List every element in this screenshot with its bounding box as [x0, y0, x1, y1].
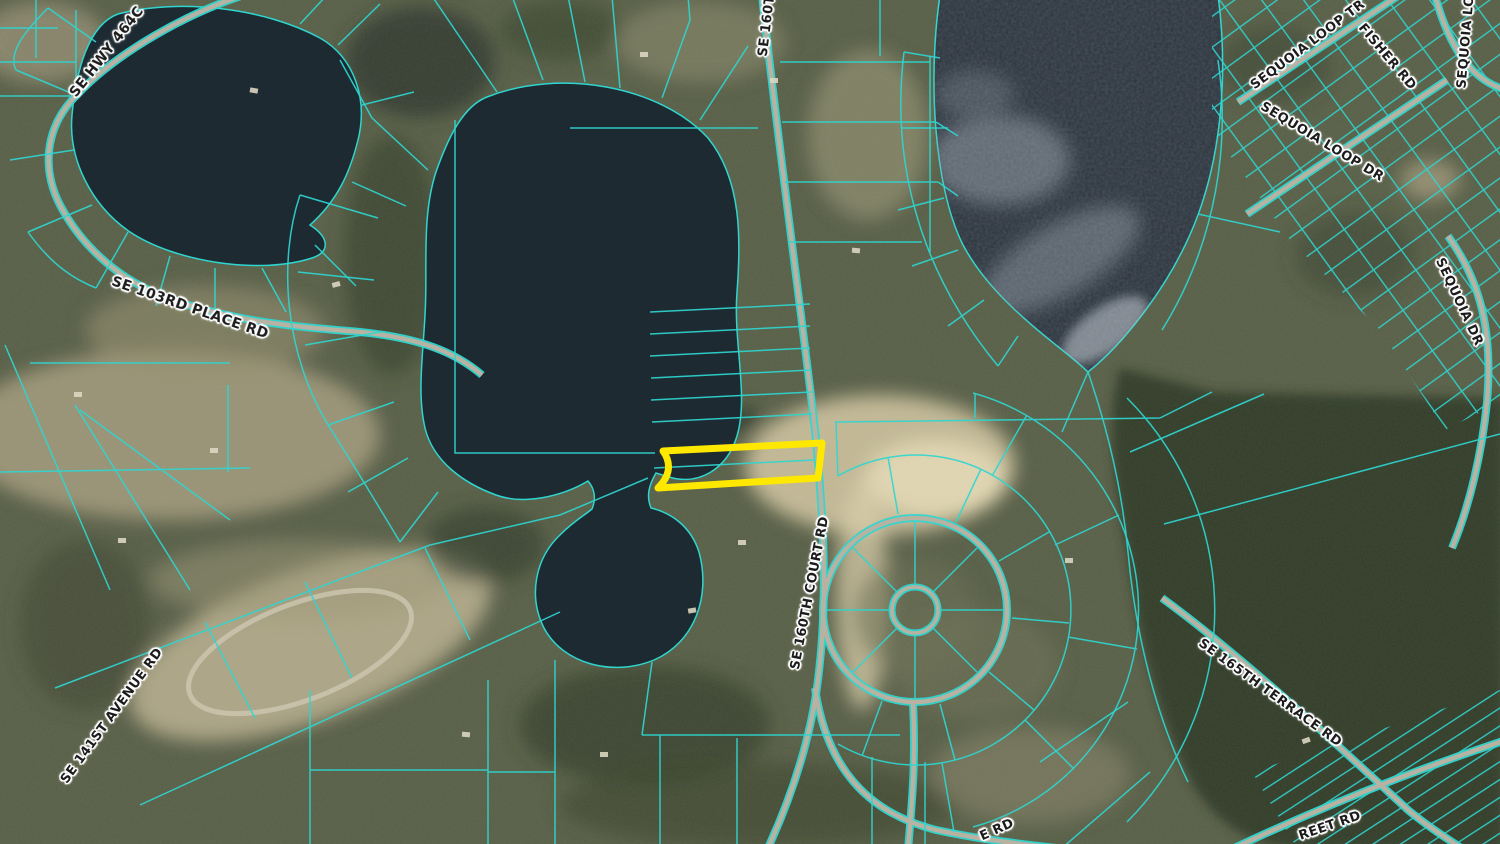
aerial-map-svg [0, 0, 1500, 844]
map-canvas[interactable]: SE HWY 464C SE 103RD PLACE RD SE 160T SE… [0, 0, 1500, 844]
